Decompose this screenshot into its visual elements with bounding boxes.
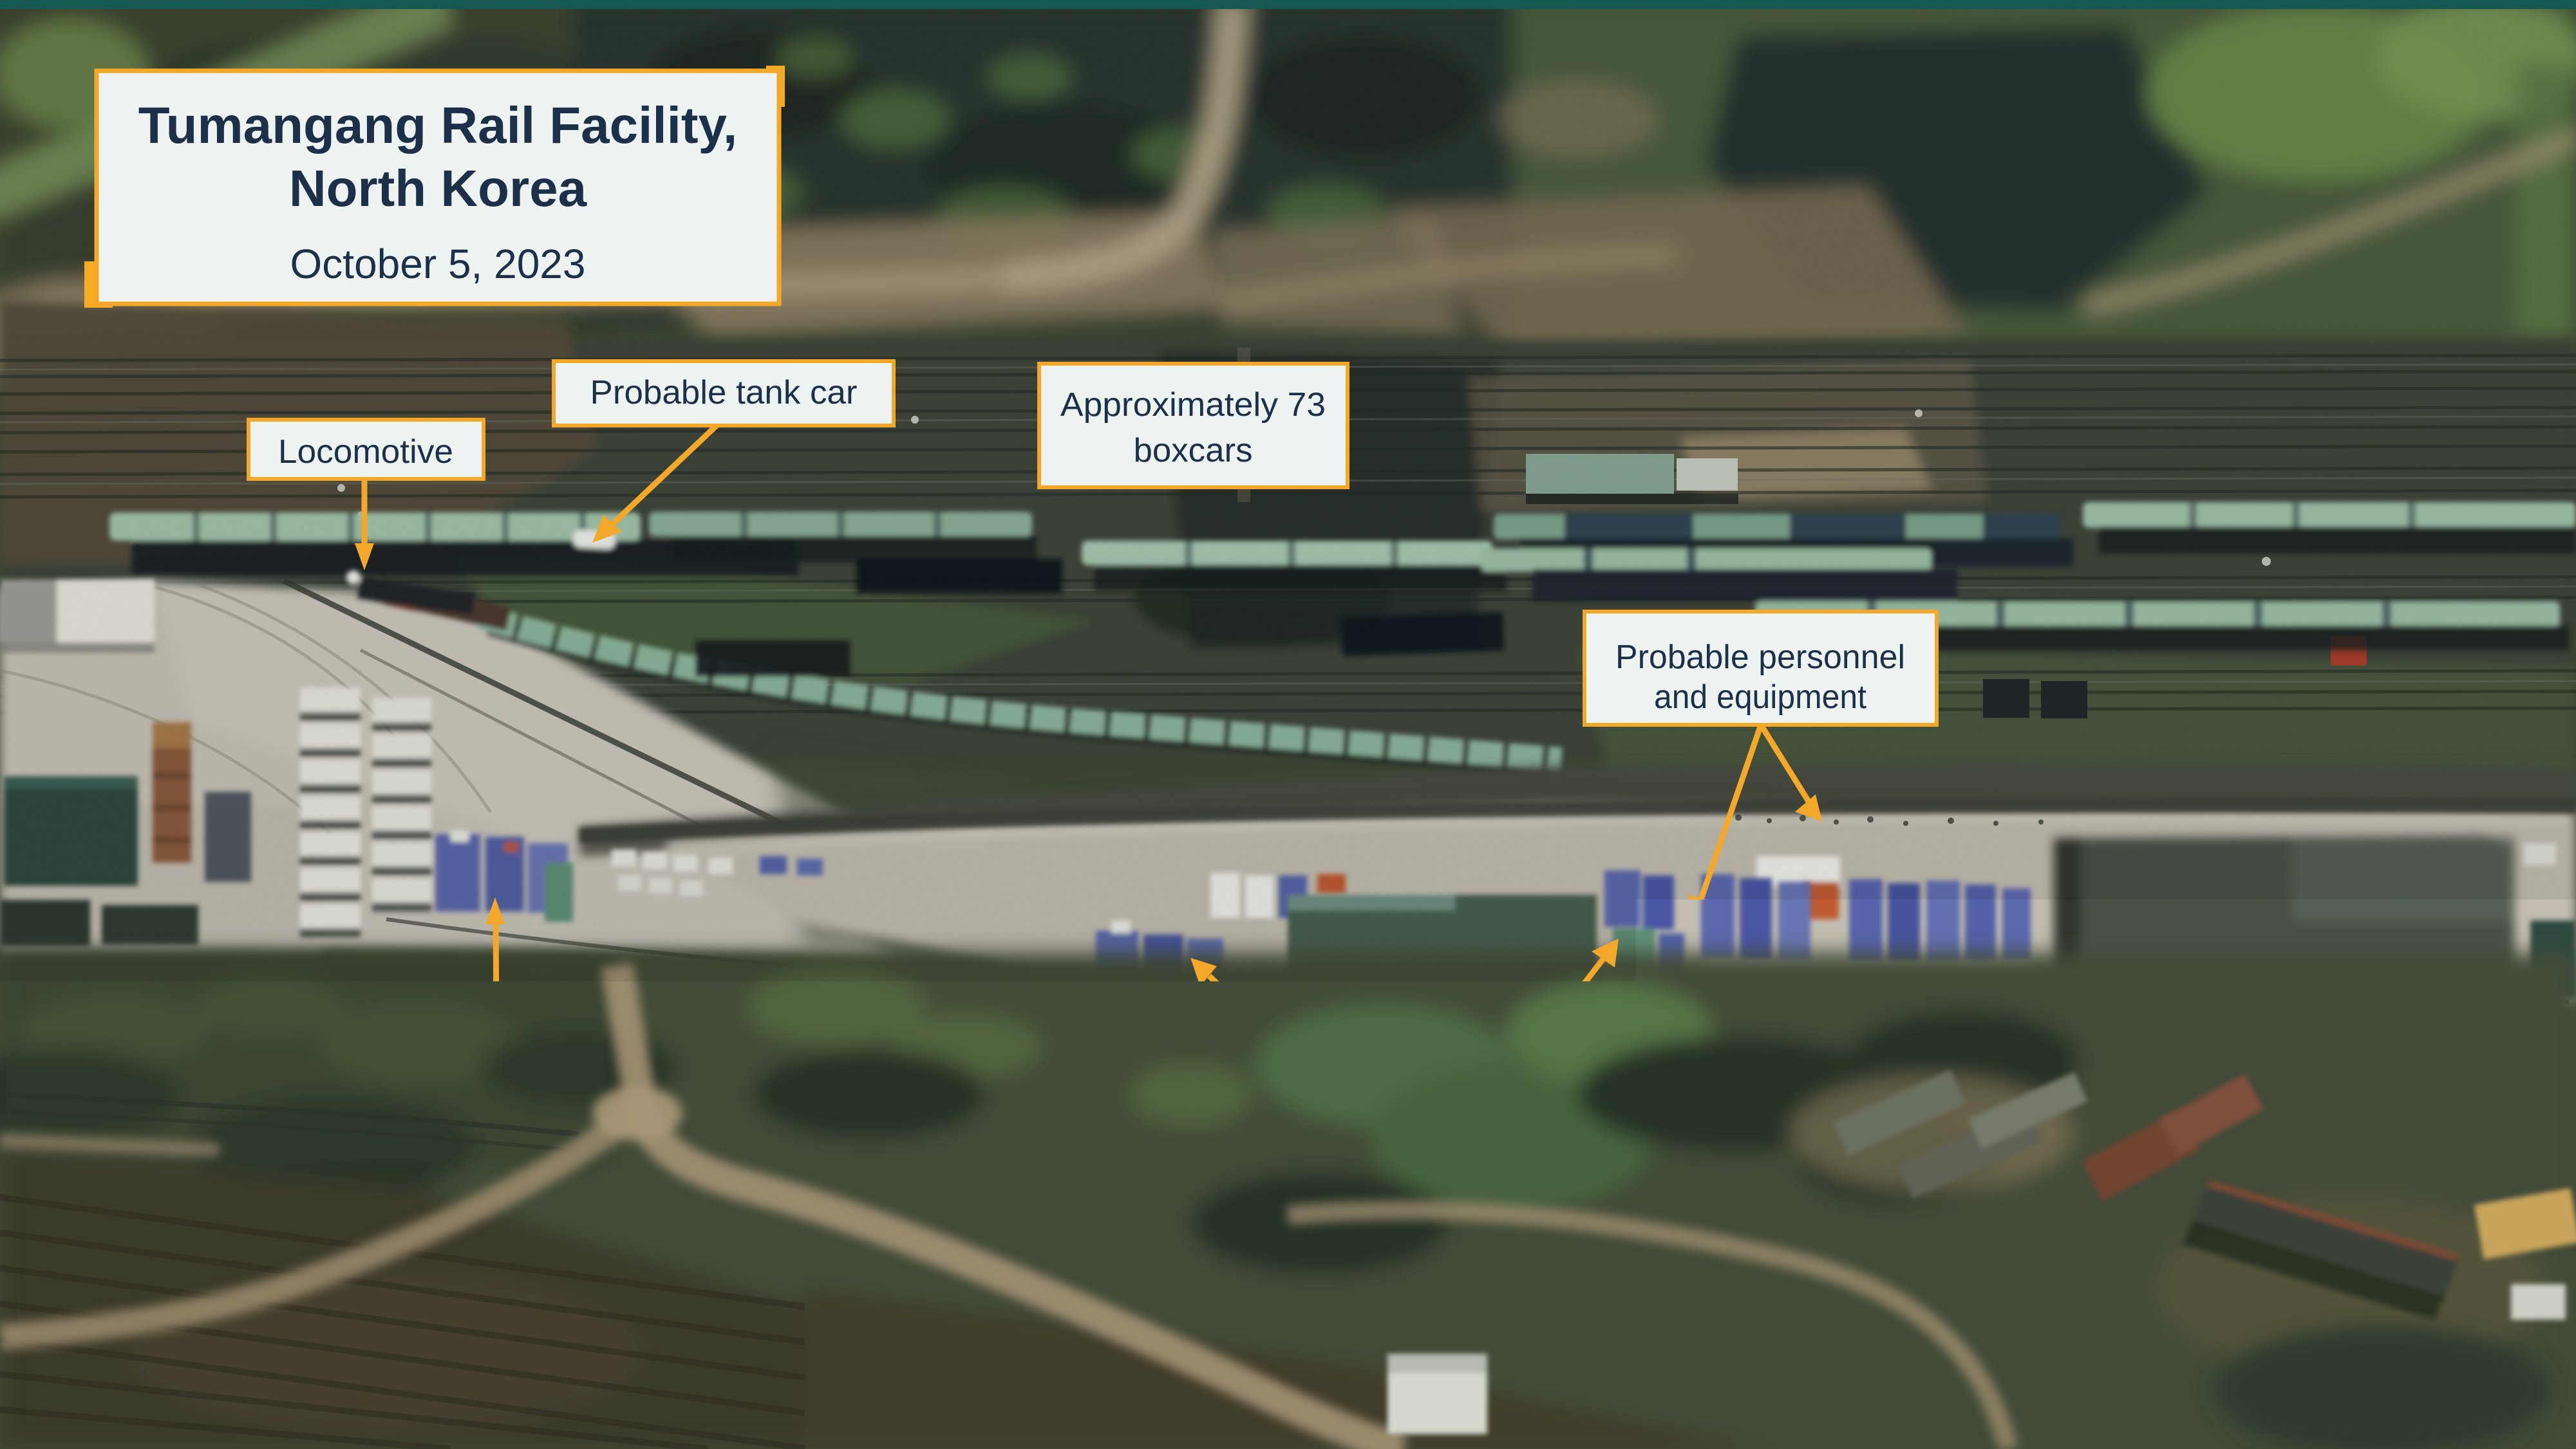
svg-text:and equipment laid out in open: and equipment laid out in open-air area	[206, 1085, 787, 1123]
svg-text:S: S	[2393, 1316, 2411, 1346]
svg-text:Probable tank car: Probable tank car	[590, 374, 858, 411]
svg-text:October 5, 2023: October 5, 2023	[290, 241, 586, 287]
svg-text:Probable personnel: Probable personnel	[1615, 639, 1905, 676]
svg-text:North Korea: North Korea	[289, 160, 587, 217]
svg-text:W: W	[2468, 1284, 2494, 1314]
svg-text:and equipment laid out in open: and equipment laid out in open-air area	[1189, 1256, 1768, 1290]
svg-text:N: N	[2503, 1371, 2522, 1401]
svg-text:Covered shipping crates/contai: Covered shipping crates/containers	[234, 1045, 759, 1083]
svg-text:BEYOND: BEYOND	[2045, 1332, 2159, 1387]
svg-text:boxcars: boxcars	[1134, 432, 1253, 469]
svg-text:Covered shipping crates/contai: Covered shipping crates/containers	[1217, 1215, 1739, 1249]
svg-text:Locomotive: Locomotive	[278, 433, 453, 471]
svg-text:E: E	[2420, 1396, 2438, 1426]
svg-text:Copyright © 2023 by Planet: Copyright © 2023 by Planet	[113, 1353, 523, 1390]
svg-text:CSIS: CSIS	[1895, 1323, 2001, 1390]
svg-text:and equipment: and equipment	[1654, 678, 1867, 716]
svg-text:Tumangang Rail Facility,: Tumangang Rail Facility,	[138, 97, 738, 154]
svg-text:EL: EL	[2309, 1332, 2342, 1387]
svg-text:Approximately 73: Approximately 73	[1060, 386, 1326, 424]
svg-text:PARA: PARA	[2214, 1332, 2282, 1387]
svg-text:1: 1	[2178, 1341, 2197, 1379]
